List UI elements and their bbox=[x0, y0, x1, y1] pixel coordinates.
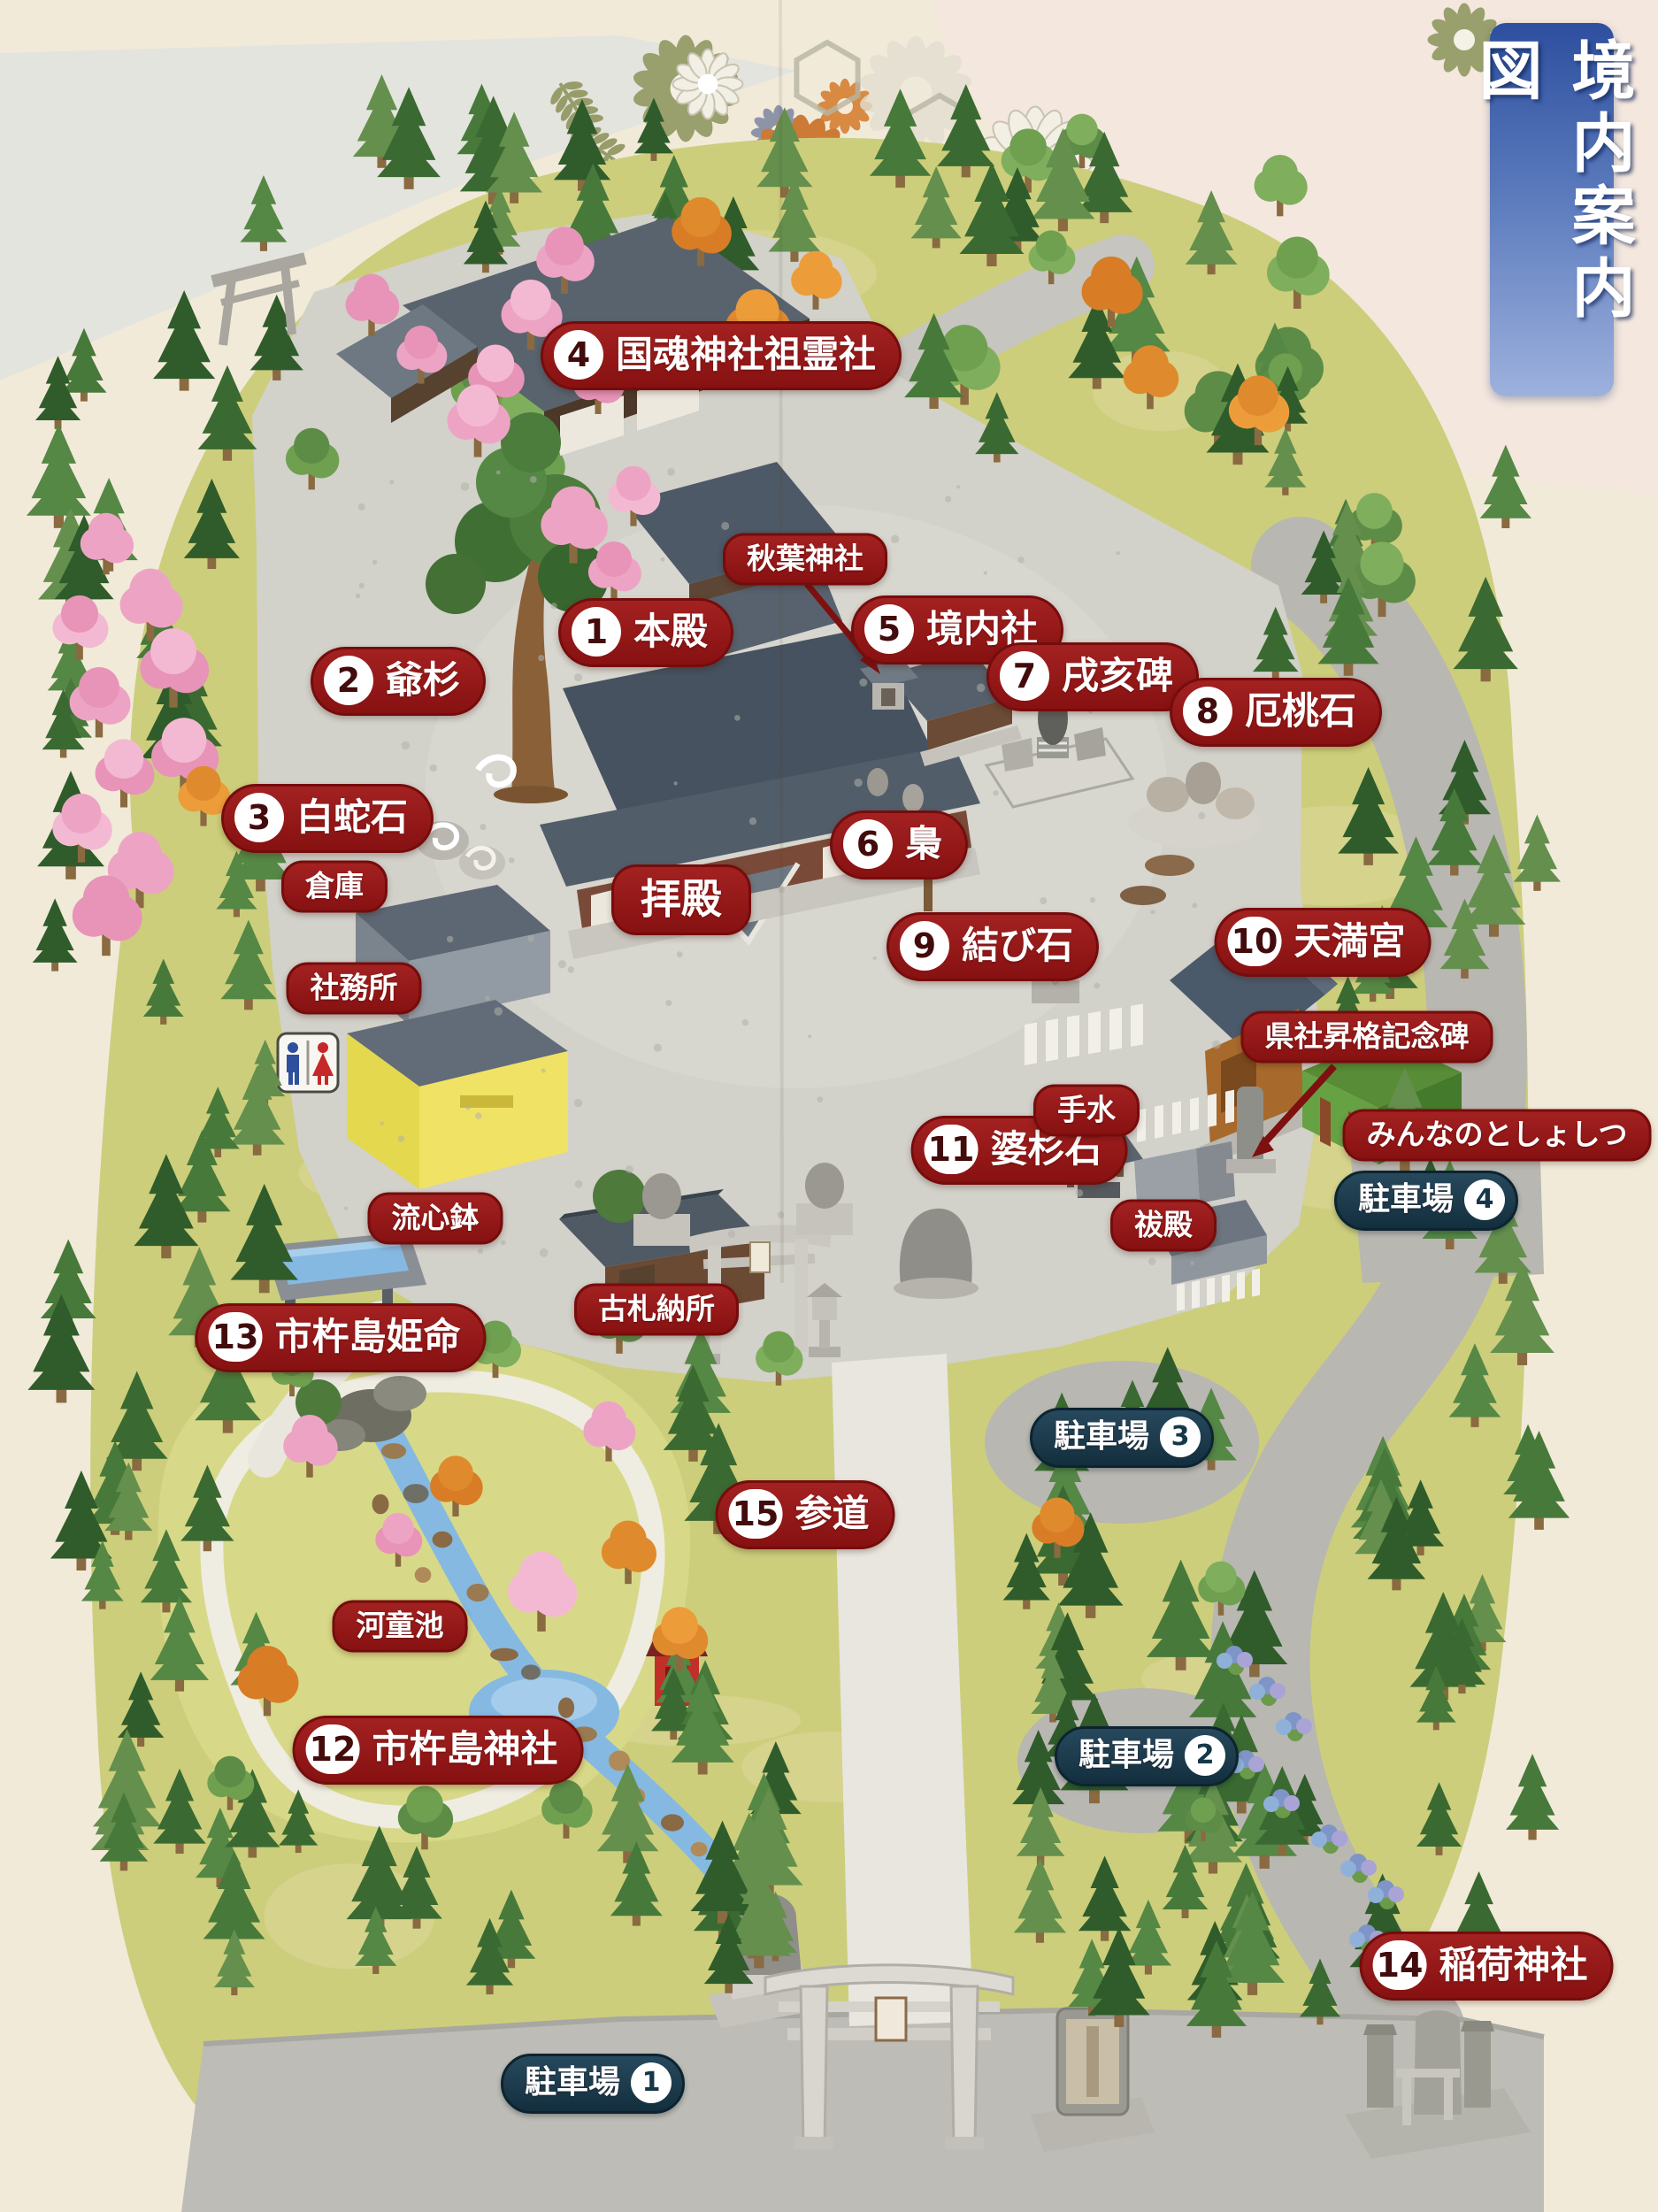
label-text: 手水 bbox=[1057, 1095, 1116, 1125]
map-title: 境内案内図 bbox=[1459, 23, 1645, 396]
label-text: 駐車場 bbox=[1054, 1421, 1149, 1453]
label-number: 4 bbox=[1464, 1179, 1505, 1220]
label-text: 県社昇格記念碑 bbox=[1265, 1022, 1470, 1051]
label-number: 3 bbox=[1160, 1417, 1201, 1457]
label-number: 1 bbox=[572, 607, 621, 657]
label-text: 河童池 bbox=[357, 1611, 444, 1640]
label-text: 祓殿 bbox=[1134, 1210, 1193, 1240]
map-label-3: 3白蛇石 bbox=[221, 784, 434, 853]
label-number: 7 bbox=[1000, 651, 1049, 701]
map-sublabel-2: 社務所 bbox=[287, 963, 422, 1015]
parking-label-2: 駐車場2 bbox=[1055, 1726, 1239, 1786]
label-number: 9 bbox=[900, 921, 949, 971]
map-label-14: 14稲荷神社 bbox=[1360, 1932, 1614, 2001]
map-sublabel-4: 県社昇格記念碑 bbox=[1241, 1011, 1493, 1064]
label-text: 梟 bbox=[905, 826, 942, 863]
map-sublabel-1: 倉庫 bbox=[281, 861, 388, 913]
label-text: 市杵島姫命 bbox=[274, 1318, 460, 1356]
label-text: 本殿 bbox=[633, 613, 708, 650]
map-sublabel-5: 手水 bbox=[1033, 1085, 1140, 1137]
parking-label-4: 駐車場4 bbox=[1334, 1171, 1518, 1231]
label-number: 3 bbox=[234, 793, 284, 842]
map-label-1: 1本殿 bbox=[558, 598, 733, 667]
label-text: みんなのとしょしつ bbox=[1366, 1120, 1627, 1149]
label-number: 12 bbox=[306, 1724, 360, 1774]
label-number: 11 bbox=[925, 1125, 979, 1174]
label-text: 天満宮 bbox=[1293, 923, 1405, 960]
label-text: 駐車場 bbox=[525, 2067, 620, 2099]
map-label-2: 2爺杉 bbox=[311, 647, 486, 716]
map-sublabel-6: みんなのとしょしつ bbox=[1342, 1110, 1651, 1162]
map-label-9: 9結び石 bbox=[887, 912, 1099, 981]
labels-layer: 1本殿2爺杉3白蛇石4国魂神社祖霊社5境内社6梟7戌亥碑8厄桃石9結び石10天満… bbox=[0, 0, 1658, 2212]
label-text: 秋葉神社 bbox=[747, 544, 864, 573]
label-text: 市杵島神社 bbox=[372, 1731, 557, 1768]
parking-label-3: 駐車場3 bbox=[1030, 1408, 1214, 1468]
label-text: 社務所 bbox=[311, 973, 398, 1002]
label-text: 結び石 bbox=[962, 927, 1073, 964]
map-label-4: 4国魂神社祖霊社 bbox=[541, 321, 902, 390]
label-text: 流心鉢 bbox=[392, 1203, 480, 1233]
label-number: 2 bbox=[324, 656, 373, 705]
map-sublabel-7: 祓殿 bbox=[1110, 1200, 1217, 1252]
map-sublabel-3: 拝殿 bbox=[611, 864, 751, 935]
label-number: 14 bbox=[1373, 1940, 1427, 1990]
label-text: 古札納所 bbox=[598, 1294, 715, 1324]
label-text: 厄桃石 bbox=[1245, 693, 1356, 730]
map-label-13: 13市杵島姫命 bbox=[196, 1303, 487, 1372]
label-text: 駐車場 bbox=[1358, 1184, 1454, 1216]
map-label-10: 10天満宮 bbox=[1215, 908, 1432, 977]
label-text: 稲荷神社 bbox=[1439, 1947, 1587, 1984]
label-text: 国魂神社祖霊社 bbox=[616, 336, 876, 373]
label-number: 13 bbox=[209, 1312, 263, 1362]
map-sublabel-9: 古札納所 bbox=[574, 1284, 739, 1336]
map-sublabel-8: 流心鉢 bbox=[368, 1193, 503, 1245]
map-label-12: 12市杵島神社 bbox=[293, 1716, 584, 1785]
label-text: 戌亥碑 bbox=[1062, 657, 1173, 695]
label-number: 2 bbox=[1185, 1735, 1225, 1776]
label-text: 白蛇石 bbox=[296, 799, 408, 836]
map-sublabel-10: 河童池 bbox=[333, 1601, 468, 1653]
label-number: 1 bbox=[631, 2062, 672, 2103]
label-number: 15 bbox=[729, 1489, 783, 1539]
label-number: 10 bbox=[1228, 917, 1282, 966]
label-text: 駐車場 bbox=[1078, 1740, 1174, 1771]
label-number: 8 bbox=[1183, 687, 1232, 736]
label-number: 6 bbox=[843, 819, 893, 869]
shrine-grounds-map: 1本殿2爺杉3白蛇石4国魂神社祖霊社5境内社6梟7戌亥碑8厄桃石9結び石10天満… bbox=[0, 0, 1658, 2212]
map-label-7: 7戌亥碑 bbox=[986, 642, 1199, 711]
map-label-15: 15参道 bbox=[716, 1480, 895, 1549]
map-title-banner: 境内案内図 bbox=[1490, 23, 1614, 396]
label-text: 倉庫 bbox=[305, 872, 364, 901]
map-label-6: 6梟 bbox=[830, 810, 968, 879]
label-text: 参道 bbox=[794, 1495, 869, 1532]
label-text: 拝殿 bbox=[641, 879, 722, 919]
label-number: 4 bbox=[554, 330, 603, 380]
parking-label-1: 駐車場1 bbox=[501, 2054, 685, 2114]
label-number: 5 bbox=[864, 604, 914, 654]
map-label-8: 8厄桃石 bbox=[1170, 678, 1382, 747]
map-sublabel-0: 秋葉神社 bbox=[723, 534, 887, 586]
label-text: 爺杉 bbox=[386, 662, 460, 699]
